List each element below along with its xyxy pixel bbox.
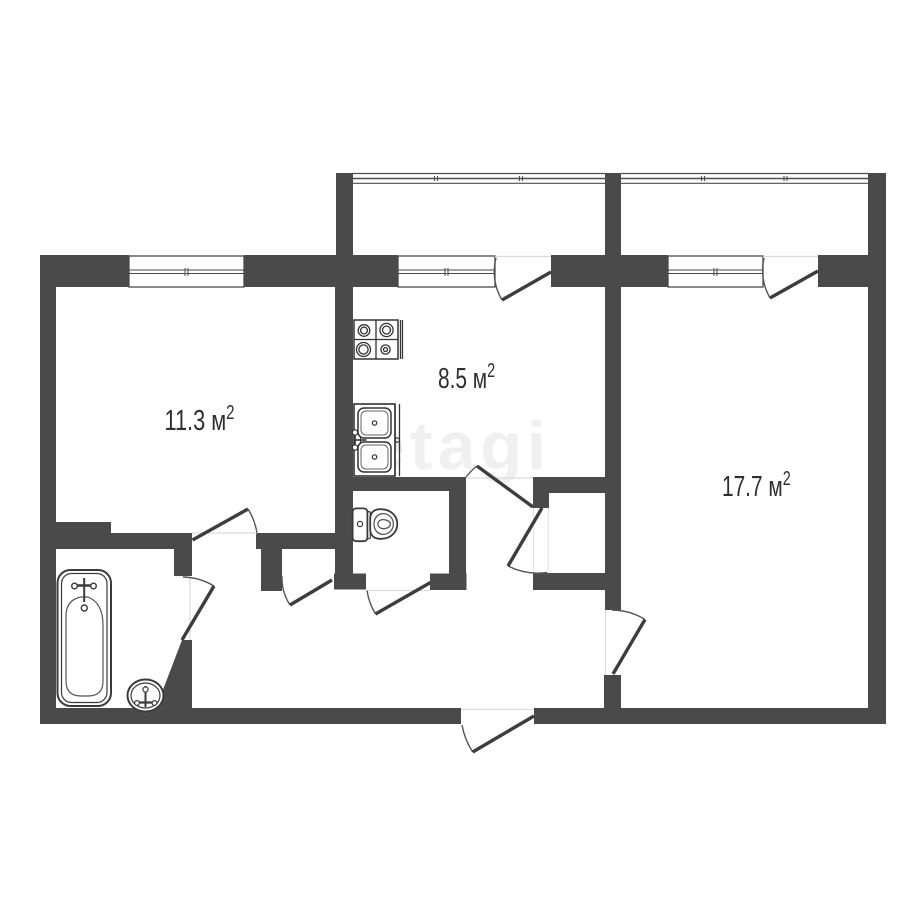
svg-text:11.3 м2: 11.3 м2 [164, 401, 234, 437]
svg-text:8.5 м2: 8.5 м2 [438, 359, 495, 395]
svg-text:17.7 м2: 17.7 м2 [722, 467, 791, 503]
